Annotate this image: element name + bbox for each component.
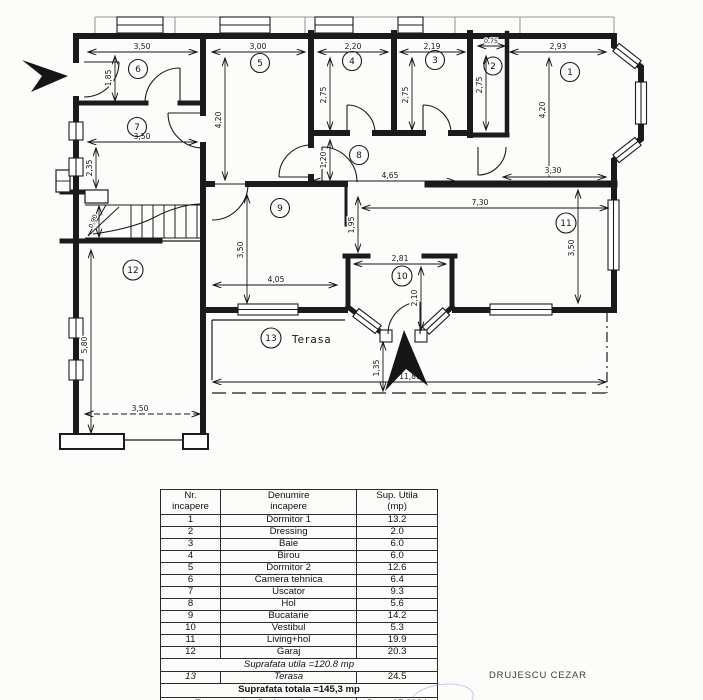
dim-kitchen-height: 3,50	[236, 241, 245, 258]
svg-text:5: 5	[257, 59, 263, 69]
svg-text:1: 1	[567, 68, 573, 78]
room-label-1: 1	[561, 63, 580, 82]
table-row: 7Uscator9.3	[161, 587, 438, 599]
dim-room6-height: 1,85	[104, 69, 113, 86]
svg-text:7: 7	[134, 123, 140, 133]
room-label-2: 2	[484, 57, 502, 75]
svg-text:2: 2	[490, 62, 496, 72]
dim-room5-height: 4,20	[214, 111, 223, 128]
table-row: 10Vestibul5.3	[161, 623, 438, 635]
svg-text:13: 13	[265, 334, 276, 344]
svg-text:3: 3	[432, 56, 438, 66]
dim-living-height: 3,50	[567, 239, 576, 256]
dim-kitchen-width: 4,05	[268, 275, 285, 284]
header-sup-line1: Sup. Utila	[376, 490, 418, 501]
room-label-9: 9	[271, 199, 290, 218]
dim-living-width: 7,30	[472, 198, 489, 207]
dim-room5-width: 3,00	[250, 42, 267, 51]
dim-room1-height: 4,20	[538, 101, 547, 118]
table-row: 1Dormitor 113.2	[161, 515, 438, 527]
svg-text:6: 6	[135, 65, 141, 75]
engineer-signature: DRUJESCU CEZAR	[489, 670, 587, 681]
table-row: 2Dressing2.0	[161, 527, 438, 539]
eaves-lines	[95, 17, 614, 33]
room-label-4: 4	[343, 52, 362, 71]
dim-hall-width: 1,20	[319, 151, 328, 168]
svg-text:4: 4	[349, 57, 355, 67]
dimension-lines	[85, 46, 608, 433]
floor-plan-drawing: 3,50 1,85 3,50 2,35 3,00 4,20 2,20 2,75 …	[0, 0, 703, 482]
dim-room1-width: 2,93	[550, 42, 567, 51]
room-label-5: 5	[251, 54, 270, 73]
dim-room7-height: 2,35	[85, 159, 94, 176]
room-number-badges: 1 2 3 4 5 6 7 8 9 10 11 12 13 Terasa	[123, 51, 580, 349]
terrace-row: 13Terasa24.5	[161, 672, 438, 684]
west-entry-arrow-icon	[22, 60, 68, 92]
header-nr-line2: incapere	[172, 501, 209, 512]
room-label-12: 12	[123, 260, 143, 280]
room-label-11: 11	[556, 213, 576, 233]
table-row: 4Birou6.0	[161, 551, 438, 563]
svg-text:9: 9	[277, 204, 283, 214]
dimension-labels: 3,50 1,85 3,50 2,35 3,00 4,20 2,20 2,75 …	[80, 38, 576, 413]
header-nr-line1: Nr.	[184, 490, 196, 501]
dim-room1-bottom: 3,30	[545, 166, 562, 175]
garage-base	[60, 434, 208, 449]
dim-room3-height: 2,75	[401, 86, 410, 103]
dim-hall-length: 4,65	[382, 171, 399, 180]
table-row: 11Living+hol19.9	[161, 635, 438, 647]
svg-text:8: 8	[356, 151, 362, 161]
subtotal-row: Suprafata utila =120.8 mp	[161, 659, 438, 672]
dim-room2-height: 2,75	[475, 76, 484, 93]
room-label-6: 6	[129, 60, 148, 79]
dim-entry-depth: 1,35	[372, 359, 381, 376]
dim-garage-width: 3,50	[132, 404, 149, 413]
room-schedule-table: Nr.incapere Denumireincapere Sup. Utila(…	[160, 489, 438, 700]
table-row: 6Camera tehnica6.4	[161, 575, 438, 587]
dim-kitchen-passage: 1,95	[347, 216, 356, 233]
dim-room6-width: 3,50	[134, 42, 151, 51]
dim-room2-width: 0,75	[484, 38, 498, 45]
header-sup-line2: (mp)	[387, 501, 407, 512]
header-name-line2: incapere	[270, 501, 307, 512]
room-label-10: 10	[392, 266, 412, 286]
table-row: 12Garaj20.3	[161, 647, 438, 659]
table-header-row: Nr.incapere Denumireincapere Sup. Utila(…	[161, 490, 438, 515]
svg-text:10: 10	[396, 272, 408, 282]
room-label-8: 8	[350, 146, 369, 165]
table-row: 8Hol5.6	[161, 599, 438, 611]
room-label-3: 3	[426, 51, 445, 70]
subtotal-useful-area: Suprafata utila =120.8 mp	[161, 659, 438, 672]
room-label-13: 13	[261, 328, 281, 348]
total-area: Suprafata totala =145,3 mp	[161, 684, 438, 698]
dim-vestibule-width: 2,81	[392, 254, 409, 263]
total-row: Suprafata totala =145,3 mp	[161, 684, 438, 698]
table-row: 3Baie6.0	[161, 539, 438, 551]
terasa-text: Terasa	[291, 334, 332, 346]
header-name-line1: Denumire	[268, 490, 310, 501]
table-row: 9Bucatarie14.2	[161, 611, 438, 623]
dim-vestibule-height: 2,10	[410, 289, 419, 306]
dim-garage-height: 5,80	[80, 336, 89, 353]
dim-room4-width: 2,20	[345, 42, 362, 51]
dim-room4-height: 2,75	[319, 86, 328, 103]
scanned-floor-plan-page: 3,50 1,85 3,50 2,35 3,00 4,20 2,20 2,75 …	[0, 0, 703, 700]
table-row: 5Dormitor 212.6	[161, 563, 438, 575]
svg-text:12: 12	[127, 266, 138, 276]
dim-room3-width: 2,19	[424, 42, 441, 51]
svg-text:11: 11	[560, 219, 571, 229]
